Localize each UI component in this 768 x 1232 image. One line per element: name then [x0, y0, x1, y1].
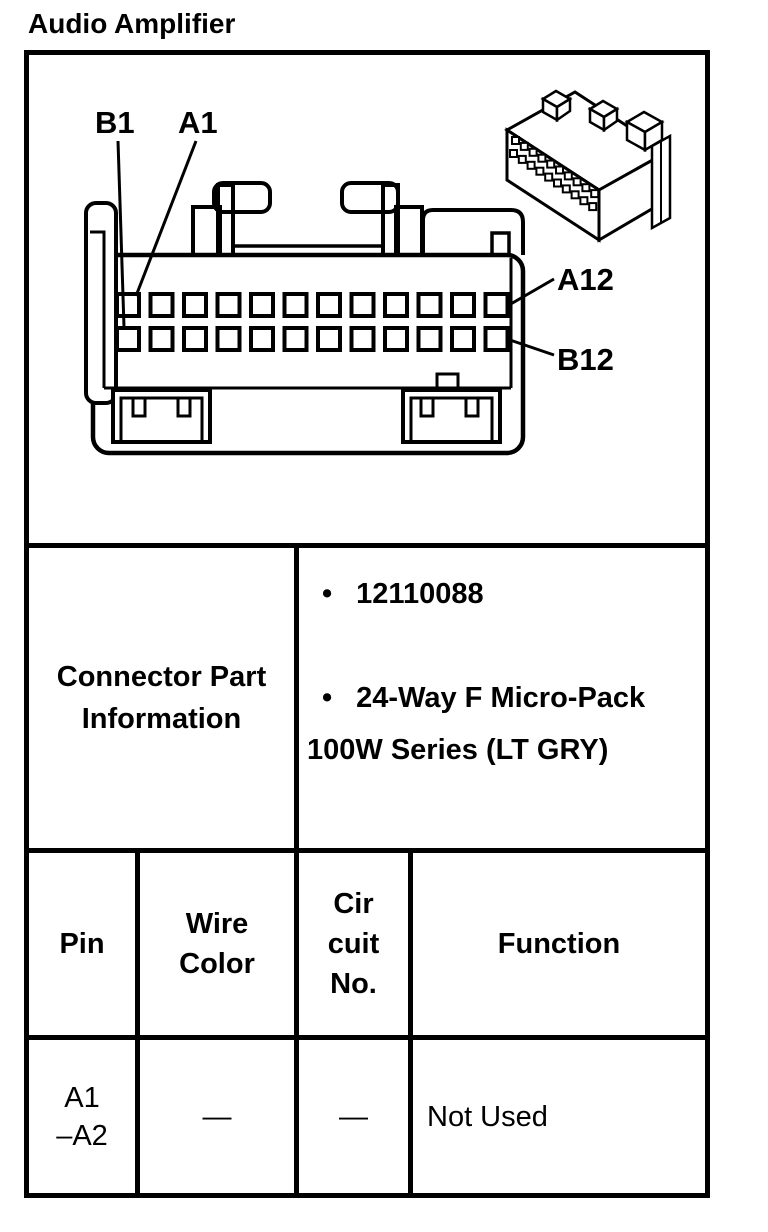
cell-pin-line1: A1 — [64, 1079, 99, 1117]
pin-label-b12: B12 — [557, 342, 614, 377]
header-wire-color-line2: Color — [179, 944, 255, 984]
connector-isometric-view — [507, 91, 670, 240]
cell-circuit-no-value: — — [339, 1098, 368, 1136]
header-wire-color-line1: Wire — [186, 904, 249, 944]
header-function: Function — [408, 853, 705, 1035]
connector-type-line1: 24-Way F Micro-Pack — [356, 682, 645, 714]
header-circuit-no-line3: No. — [330, 964, 377, 1004]
connector-info-label: Connector Part Information — [29, 548, 294, 848]
pin-label-a1: A1 — [178, 105, 218, 140]
part-number: 12110088 — [356, 578, 483, 610]
table-header-row: Pin Wire Color Cir cuit No. Function — [29, 848, 705, 1035]
header-circuit-no: Cir cuit No. — [294, 853, 408, 1035]
header-pin-label: Pin — [59, 924, 104, 964]
connector-type-line2: 100W Series (LT GRY) — [307, 724, 675, 776]
connector-diagram: B1 A1 A12 B12 — [29, 55, 705, 543]
header-wire-color: Wire Color — [135, 853, 294, 1035]
cell-wire-color: — — [135, 1040, 294, 1193]
cell-function: Not Used — [408, 1040, 705, 1193]
mounting-foot-left — [113, 390, 210, 442]
cell-pin-line2: –A2 — [56, 1117, 108, 1155]
connector-info-row: Connector Part Information •12110088 •24… — [29, 543, 705, 848]
list-item: •24-Way F Micro-Pack 100W Series (LT GRY… — [307, 672, 675, 776]
connector-info-label-line2: Information — [82, 698, 242, 740]
connector-info-details: •12110088 •24-Way F Micro-Pack 100W Seri… — [294, 548, 705, 848]
header-circuit-no-line2: cuit — [328, 924, 380, 964]
bullet-icon: • — [322, 672, 332, 724]
connector-diagram-box: B1 A1 A12 B12 — [29, 55, 705, 543]
pin-label-a12: A12 — [557, 262, 614, 297]
header-pin: Pin — [29, 853, 135, 1035]
cell-pin: A1 –A2 — [29, 1040, 135, 1193]
cell-function-value: Not Used — [427, 1098, 548, 1136]
connector-front-view — [86, 183, 523, 453]
pin-label-b1: B1 — [95, 105, 135, 140]
cell-circuit-no: — — [294, 1040, 408, 1193]
connector-info-label-line1: Connector Part — [57, 656, 266, 698]
table-row: A1 –A2 — — Not Used — [29, 1035, 705, 1193]
document-frame: B1 A1 A12 B12 — [24, 50, 710, 1198]
list-item: •12110088 — [307, 568, 675, 620]
cell-wire-color-value: — — [203, 1098, 232, 1136]
header-circuit-no-line1: Cir — [333, 884, 373, 924]
header-function-label: Function — [498, 924, 620, 964]
bullet-icon: • — [322, 568, 332, 620]
page-title: Audio Amplifier — [28, 8, 235, 40]
